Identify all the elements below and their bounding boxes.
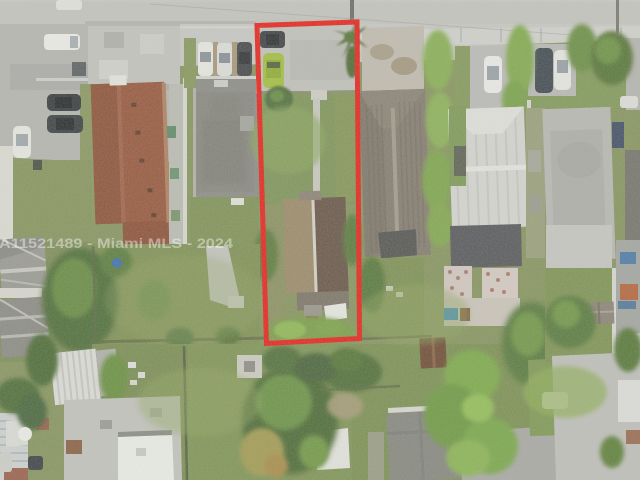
svg-text:A11521489 - Miami MLS - 2024: A11521489 - Miami MLS - 2024 — [0, 236, 234, 251]
